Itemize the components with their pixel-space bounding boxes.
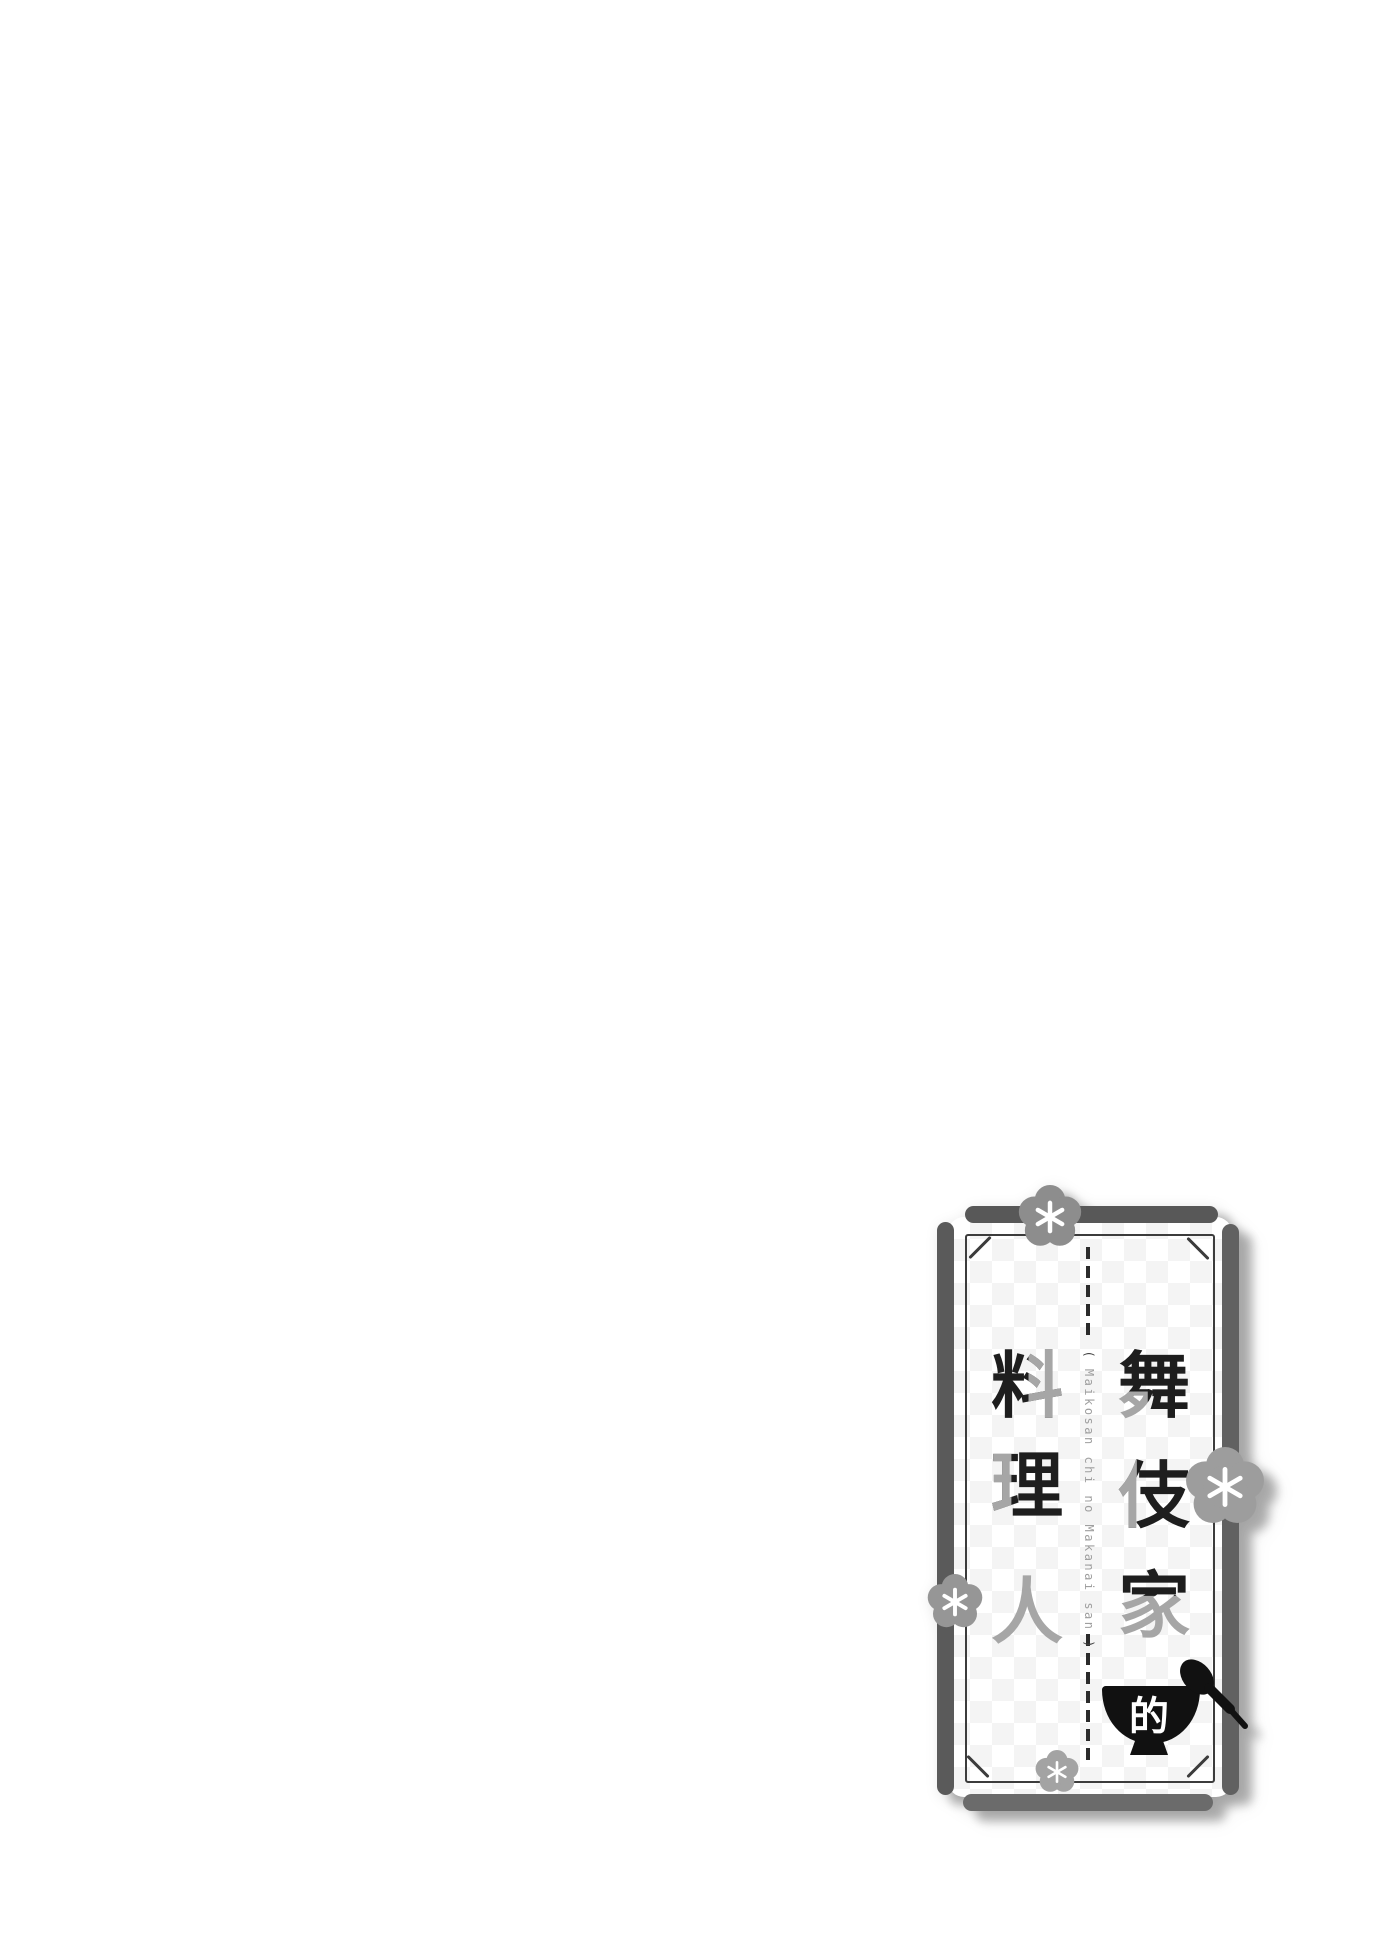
plum-blossom-top-icon <box>1018 1185 1082 1249</box>
title-card: ( Maikosan chi no Makanai san ) 舞 舞 伎 伎 … <box>925 1183 1270 1815</box>
title-char-mai: 舞 舞 <box>1115 1347 1193 1425</box>
title-char-ryou: 料 料 <box>988 1347 1066 1425</box>
dashed-divider-top <box>1086 1247 1090 1342</box>
border-bar-top <box>965 1206 1218 1223</box>
dashed-divider-bottom <box>1086 1634 1090 1765</box>
romanization-open-paren: ( <box>1082 1352 1096 1359</box>
plum-blossom-left-icon <box>927 1574 983 1630</box>
romanization-vertical: ( Maikosan chi no Makanai san ) <box>1075 1352 1103 1620</box>
title-char-ri: 理 理 <box>988 1447 1066 1525</box>
spoon-icon <box>1175 1655 1255 1740</box>
title-char-de: 的 <box>1127 1695 1171 1739</box>
title-char-nin: 人 <box>988 1573 1066 1651</box>
border-bar-bottom <box>963 1794 1213 1811</box>
title-char-ie: 家 家 <box>1115 1567 1193 1645</box>
plum-blossom-bottom-icon <box>1035 1750 1079 1794</box>
border-bar-left <box>937 1222 954 1795</box>
romanization-close-paren: ) <box>1082 1641 1096 1648</box>
plum-blossom-right-icon <box>1185 1447 1265 1527</box>
title-char-gi: 伎 伎 <box>1115 1457 1193 1535</box>
romanization-text: Maikosan chi no Makanai san <box>1082 1369 1096 1632</box>
title-char-nin-base: 人 <box>988 1573 1066 1651</box>
rice-bowl-foot <box>1130 1740 1168 1755</box>
manga-page: ( Maikosan chi no Makanai san ) 舞 舞 伎 伎 … <box>0 0 1400 1958</box>
